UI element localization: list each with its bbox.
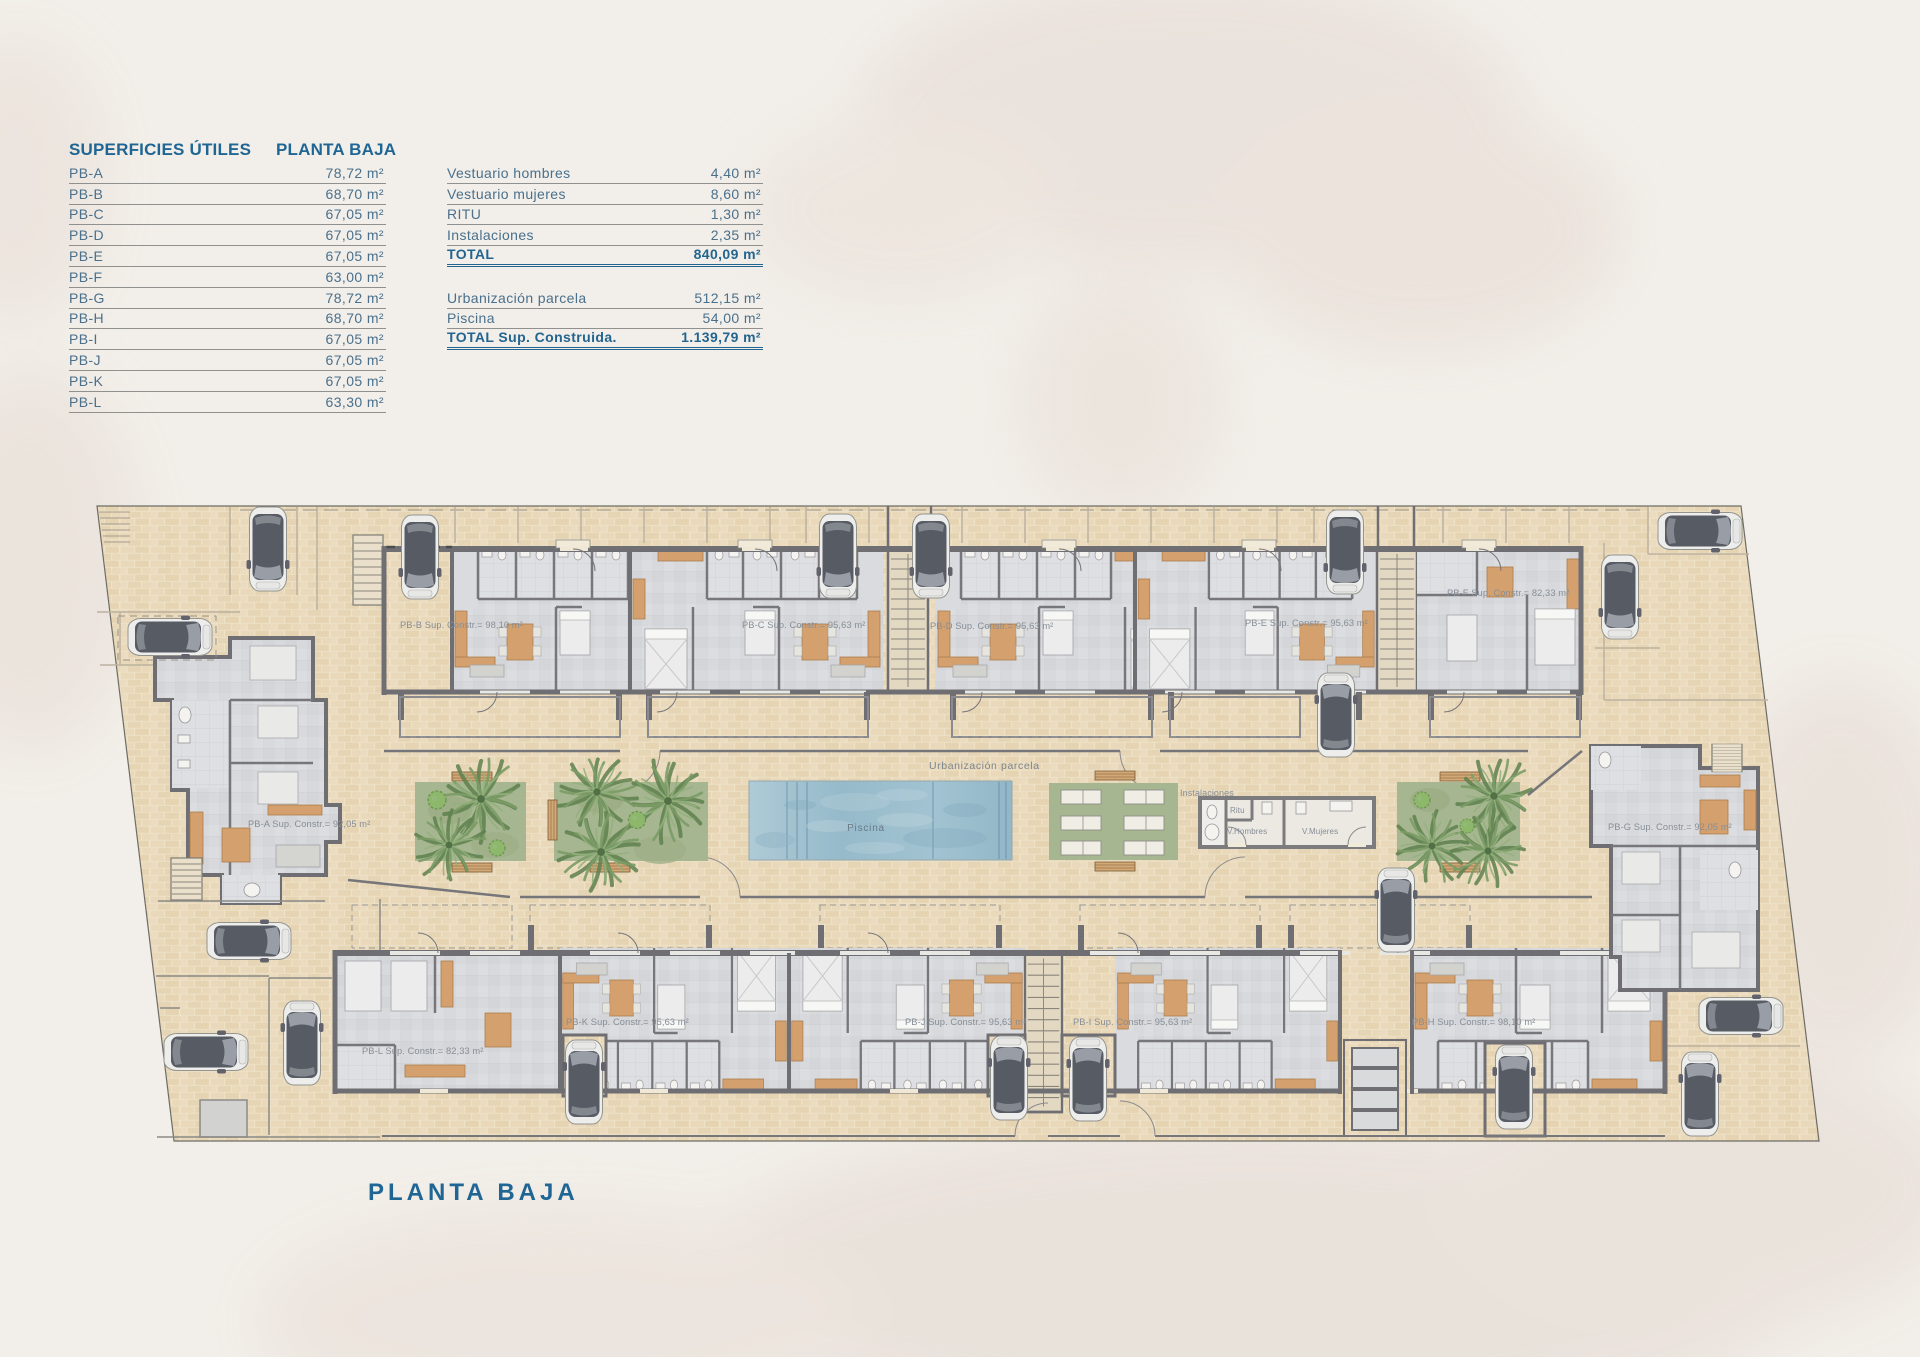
svg-text:PB-C Sup. Constr.= 95,63 m²: PB-C Sup. Constr.= 95,63 m² — [742, 620, 865, 630]
svg-text:PB-B Sup. Constr.= 98,10 m²: PB-B Sup. Constr.= 98,10 m² — [400, 620, 523, 630]
svg-text:Instalaciones: Instalaciones — [1180, 788, 1234, 798]
svg-text:V.Hombres: V.Hombres — [1227, 827, 1267, 836]
svg-text:PB-G Sup. Constr.= 92,05 m²: PB-G Sup. Constr.= 92,05 m² — [1608, 822, 1732, 832]
svg-text:V.Mujeres: V.Mujeres — [1302, 827, 1338, 836]
svg-text:PB-A Sup. Constr.= 92,05 m²: PB-A Sup. Constr.= 92,05 m² — [248, 819, 370, 829]
svg-text:PB-L Sup. Constr.= 82,33 m²: PB-L Sup. Constr.= 82,33 m² — [362, 1046, 483, 1056]
svg-text:Piscina: Piscina — [847, 823, 885, 834]
svg-text:PB-E Sup. Constr.= 95,63 m²: PB-E Sup. Constr.= 95,63 m² — [1245, 618, 1368, 628]
svg-text:PB-I Sup. Constr.= 95,63 m²: PB-I Sup. Constr.= 95,63 m² — [1073, 1017, 1192, 1027]
svg-text:PB-K Sup. Constr.= 95,63 m²: PB-K Sup. Constr.= 95,63 m² — [566, 1017, 689, 1027]
svg-text:PB-H Sup. Constr.= 98,10 m²: PB-H Sup. Constr.= 98,10 m² — [1412, 1017, 1535, 1027]
svg-text:PB-J Sup. Constr.= 95,63 m²: PB-J Sup. Constr.= 95,63 m² — [905, 1017, 1026, 1027]
svg-text:PB-F Sup. Constr.= 82,33 m²: PB-F Sup. Constr.= 82,33 m² — [1447, 588, 1569, 598]
svg-text:Urbanización parcela: Urbanización parcela — [929, 760, 1040, 772]
svg-text:Ritu: Ritu — [1230, 806, 1245, 815]
svg-text:PB-D Sup. Constr.= 95,63 m²: PB-D Sup. Constr.= 95,63 m² — [930, 621, 1053, 631]
